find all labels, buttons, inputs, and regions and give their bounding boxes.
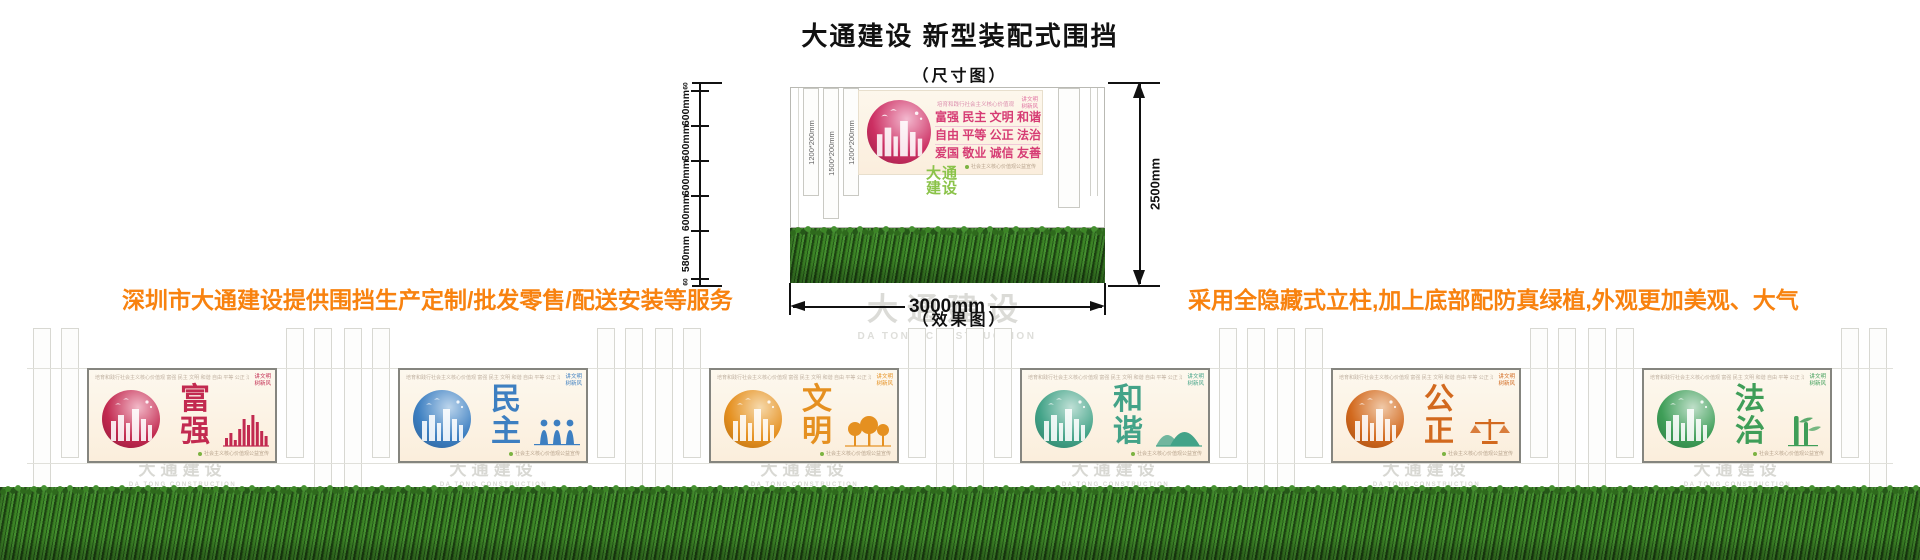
poster-header: 培育和践行社会主义核心价值观 富强 民主 文明 和谐 自由 平等 公正 法治 爱… [717,374,871,381]
ruler-tick [691,125,709,127]
arrow-left-icon [790,301,805,311]
fence-post-strip [61,328,79,458]
values-row: 爱国 敬业 诚信 友善 [935,145,1039,162]
fence-post-strip [597,328,615,458]
promo-sheet: 大通建设 新型装配式围挡 （尺寸图） 深圳市大通建设提供围挡生产定制/批发零售/… [0,0,1920,560]
poster-header: 培育和践行社会主义核心价值观 富强 民主 文明 和谐 自由 平等 公正 法治 爱… [1339,374,1493,381]
value-word: 公正 [1419,384,1459,448]
fence-frame-line [798,88,799,227]
green-dot-icon [1753,452,1757,456]
strip-size-label: 1200*200mm [847,120,856,165]
green-dot-icon [1131,452,1135,456]
poster-footer: 社会主义核心价值观公益宣传 [509,450,580,457]
ruler-label: 60 [683,82,690,89]
post-strip: 1500*200mm [823,88,839,219]
values-row: 自由 平等 公正 法治 [935,127,1039,145]
arrow-up-icon [1133,82,1145,98]
value-panel-poster: 培育和践行社会主义核心价值观 富强 民主 文明 和谐 自由 平等 公正 法治 爱… [709,368,899,463]
fence-post-strip [994,328,1012,458]
left-note: 深圳市大通建设提供围挡生产定制/批发零售/配送安装等服务 [122,281,733,315]
poster-footer: 社会主义核心价值观公益宣传 [965,163,1036,170]
papercut-circle-icon [867,100,931,164]
values-row: 富强 民主 文明 和谐 [935,109,1039,127]
datong-green-logo: 大通 建设 [926,166,958,196]
dimension-line [1139,84,1141,284]
value-panel-poster: 培育和践行社会主义核心价值观 富强 民主 文明 和谐 自由 平等 公正 法治 爱… [1331,368,1521,463]
ruler-label: 60 [683,278,690,285]
fence-post-strip [1530,328,1548,458]
value-char: 富 [175,384,215,416]
ruler-label: 580mm [680,236,692,272]
arrow-right-icon [1090,301,1105,311]
value-char: 主 [486,416,526,448]
poster-footer: 社会主义核心价值观公益宣传 [1131,450,1202,457]
ruler-line [699,82,701,285]
value-char: 正 [1419,416,1459,448]
value-char: 文 [797,384,837,416]
scales-icon [1467,414,1513,448]
size-diagram-label: （尺寸图） [0,62,1920,86]
value-panel-poster: 培育和践行社会主义核心价值观 富强 民主 文明 和谐 自由 平等 公正 法治 爱… [398,368,588,463]
papercut-circle-icon [413,390,471,448]
value-char: 强 [175,416,215,448]
poster-header: 培育和践行社会主义核心价值观 富强 民主 文明 和谐 自由 平等 公正 法治 爱… [95,374,249,381]
poster-footer: 社会主义核心价值观公益宣传 [820,450,891,457]
right-note: 采用全隐藏式立柱,加上底部配防真绿植,外观更加美观、大气 [1188,281,1799,315]
papercut-circle-icon [724,390,782,448]
corner-slogan: 讲文明 树新风 [1021,97,1038,110]
diagram-grass-hedge [790,228,1105,283]
hills-icon [1156,414,1202,448]
green-dot-icon [1442,452,1446,456]
bamboo-icon [1778,414,1824,448]
ruler-tick [691,230,709,232]
corner-slogan: 讲文明 树新风 [565,374,582,387]
arrow-down-icon [1133,270,1145,286]
dimension-line [793,306,905,308]
poster-header: 培育和践行社会主义核心价值观 富强 民主 文明 和谐 自由 平等 公正 法治 爱… [1650,374,1804,381]
trees-icon [845,414,891,448]
ruler-label: 600mm [680,194,692,230]
fence-post-strip [1616,328,1634,458]
poster-header: 培育和践行社会主义核心价值观 [937,100,1014,108]
green-dot-icon [965,165,969,169]
poster-footer: 社会主义核心价值观公益宣传 [1442,450,1513,457]
effect-diagram-label: （效果图） [912,306,1007,330]
corner-slogan: 讲文明 树新风 [1809,374,1826,387]
page-title: 大通建设 新型装配式围挡 [0,16,1920,53]
poster-header: 培育和践行社会主义核心价值观 富强 民主 文明 和谐 自由 平等 公正 法治 爱… [1028,374,1182,381]
corner-slogan: 讲文明 树新风 [1498,374,1515,387]
fence-frame-line [1090,88,1091,196]
value-panel-poster: 培育和践行社会主义核心价值观 富强 民主 文明 和谐 自由 平等 公正 法治 爱… [87,368,277,463]
corner-slogan: 讲文明 树新风 [1187,374,1204,387]
fence-post-strip [1841,328,1859,458]
papercut-circle-icon [102,390,160,448]
height-dimension-label: 2500mm [1148,158,1163,210]
ruler-tick [691,278,709,280]
figures-icon [534,414,580,448]
post-strip: 1200*200mm [803,88,819,196]
value-word: 民主 [486,384,526,448]
green-dot-icon [509,452,513,456]
ruler-label: 600mm [680,89,692,125]
post-strip: 1200*200mm [843,88,859,196]
strip-size-label: 1500*200mm [827,131,836,176]
ruler-label: 600mm [680,124,692,160]
value-word: 和谐 [1108,384,1148,448]
corner-slogan: 讲文明 树新风 [876,374,893,387]
fence-post-strip [372,328,390,458]
value-char: 公 [1419,384,1459,416]
value-word: 法治 [1730,384,1770,448]
green-dot-icon [198,452,202,456]
fence-post-strip [286,328,304,458]
post-strip-right [1058,88,1080,208]
poster-footer: 社会主义核心价值观公益宣传 [198,450,269,457]
value-char: 民 [486,384,526,416]
ruler-tick [691,160,709,162]
value-char: 法 [1730,384,1770,416]
papercut-circle-icon [1657,390,1715,448]
value-char: 谐 [1108,416,1148,448]
fence-frame-line [1097,88,1098,196]
corner-slogan: 讲文明 树新风 [254,374,271,387]
fence-post-strip [683,328,701,458]
ruler-tick [691,90,709,92]
green-dot-icon [820,452,824,456]
poster-header: 培育和践行社会主义核心价值观 富强 民主 文明 和谐 自由 平等 公正 法治 爱… [406,374,560,381]
strip-size-label: 1200*200mm [807,120,816,165]
fence-post-strip [908,328,926,458]
value-word: 文明 [797,384,837,448]
value-panel-poster: 培育和践行社会主义核心价值观 富强 民主 文明 和谐 自由 平等 公正 法治 爱… [1020,368,1210,463]
values-poster: 培育和践行社会主义核心价值观 富强 民主 文明 和谐 自由 平等 公正 法治 爱… [858,90,1043,175]
grass-hedge [0,487,1920,560]
ruler-tick [692,285,722,287]
fence-post-strip [1219,328,1237,458]
value-char: 治 [1730,416,1770,448]
core-values-rows: 富强 民主 文明 和谐 自由 平等 公正 法治 爱国 敬业 诚信 友善 [935,109,1039,162]
papercut-circle-icon [1346,390,1404,448]
papercut-circle-icon [1035,390,1093,448]
ruler-label: 600mm [680,159,692,195]
bars-icon [223,414,269,448]
fence-post-strip [1305,328,1323,458]
value-char: 和 [1108,384,1148,416]
poster-footer: 社会主义核心价值观公益宣传 [1753,450,1824,457]
ruler-tick [692,82,722,84]
value-word: 富强 [175,384,215,448]
value-char: 明 [797,416,837,448]
value-panel-poster: 培育和践行社会主义核心价值观 富强 民主 文明 和谐 自由 平等 公正 法治 爱… [1642,368,1832,463]
ruler-tick [691,195,709,197]
